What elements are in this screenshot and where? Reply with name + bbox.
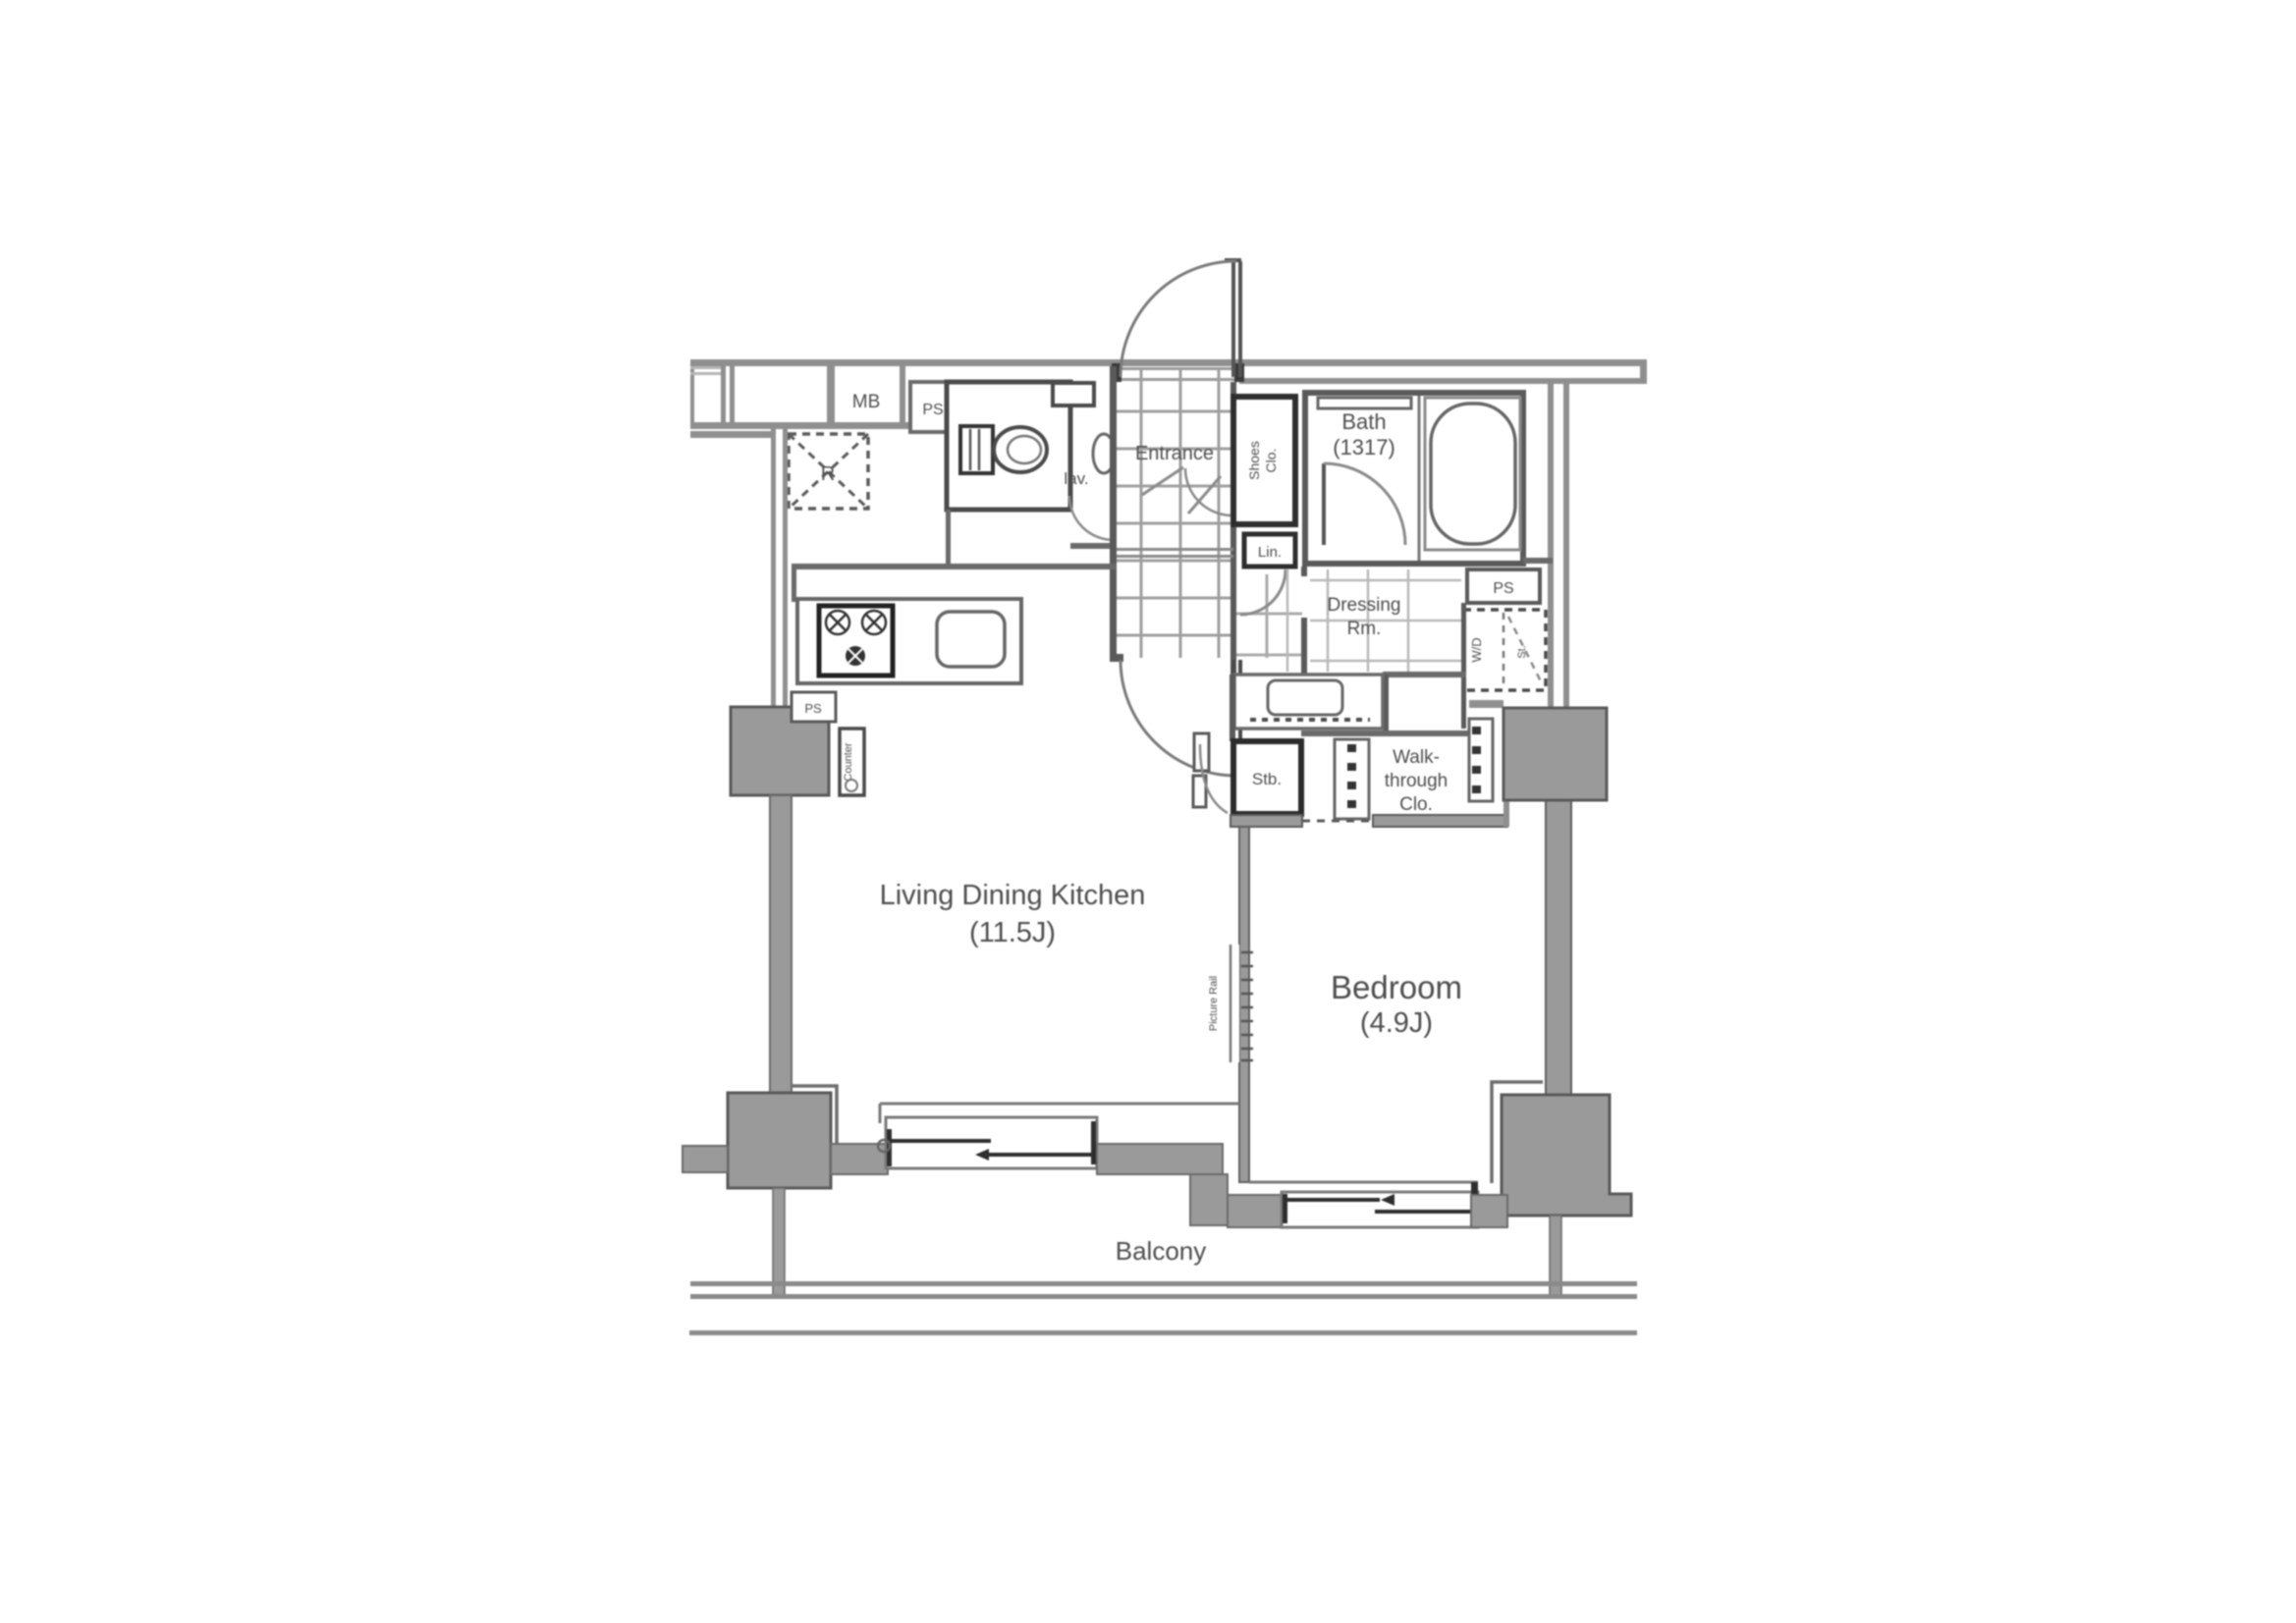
svg-text:W/D: W/D — [1469, 637, 1484, 662]
svg-text:PS: PS — [1493, 580, 1513, 597]
svg-text:Bath: Bath — [1341, 409, 1386, 434]
svg-text:Counter: Counter — [843, 742, 854, 781]
svg-text:Clo.: Clo. — [1399, 794, 1433, 815]
svg-text:Lin.: Lin. — [1258, 544, 1282, 561]
svg-text:Walk-: Walk- — [1393, 747, 1440, 768]
svg-text:Balcony: Balcony — [1116, 1236, 1207, 1266]
svg-text:Rm.: Rm. — [1347, 619, 1382, 639]
svg-text:Bedroom: Bedroom — [1331, 969, 1462, 1005]
svg-text:MB: MB — [852, 392, 881, 412]
svg-text:Shoes: Shoes — [1246, 441, 1262, 480]
svg-text:Clo.: Clo. — [1263, 449, 1279, 473]
svg-text:(1317): (1317) — [1333, 435, 1395, 460]
svg-text:Dressing: Dressing — [1328, 595, 1401, 616]
svg-text:through: through — [1385, 771, 1448, 791]
svg-text:R: R — [821, 463, 835, 485]
svg-text:lav.: lav. — [1064, 469, 1088, 488]
svg-text:PS: PS — [804, 701, 822, 716]
svg-text:Living Dining Kitchen: Living Dining Kitchen — [880, 880, 1146, 911]
svg-text:(4.9J): (4.9J) — [1360, 1007, 1433, 1039]
svg-text:PS: PS — [922, 402, 943, 418]
svg-text:St.: St. — [1516, 645, 1528, 658]
svg-text:(11.5J): (11.5J) — [969, 917, 1056, 948]
svg-text:Stb.: Stb. — [1252, 770, 1282, 788]
svg-text:Picture Rail: Picture Rail — [1208, 976, 1220, 1031]
svg-text:Entrance: Entrance — [1135, 443, 1214, 464]
